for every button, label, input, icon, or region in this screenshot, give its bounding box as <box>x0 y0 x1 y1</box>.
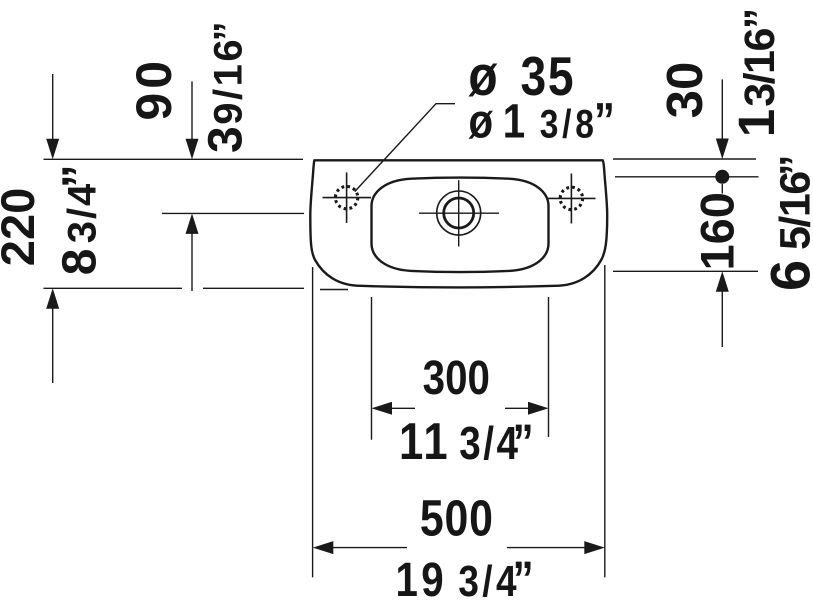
svg-text:39/16”: 39/16” <box>200 21 253 153</box>
svg-text:35: 35 <box>521 45 576 107</box>
svg-text:3/8: 3/8 <box>540 102 598 146</box>
svg-text:”: ” <box>513 551 534 607</box>
svg-text:13/16”: 13/16” <box>728 8 785 138</box>
svg-text:300: 300 <box>423 352 490 405</box>
svg-text:83/4”: 83/4” <box>54 164 107 275</box>
svg-text:160: 160 <box>691 192 744 270</box>
svg-text:ø: ø <box>469 95 494 148</box>
svg-text:19: 19 <box>396 554 448 607</box>
svg-text:”: ” <box>513 413 534 469</box>
svg-text:1: 1 <box>503 95 525 148</box>
svg-text:3/4: 3/4 <box>459 418 520 469</box>
svg-text:11: 11 <box>399 413 450 470</box>
svg-text:”: ” <box>594 92 615 148</box>
svg-text:90: 90 <box>126 57 182 121</box>
svg-text:220: 220 <box>0 188 44 266</box>
svg-text:3/4: 3/4 <box>458 556 519 606</box>
svg-text:30: 30 <box>656 62 713 119</box>
svg-text:500: 500 <box>420 489 494 546</box>
